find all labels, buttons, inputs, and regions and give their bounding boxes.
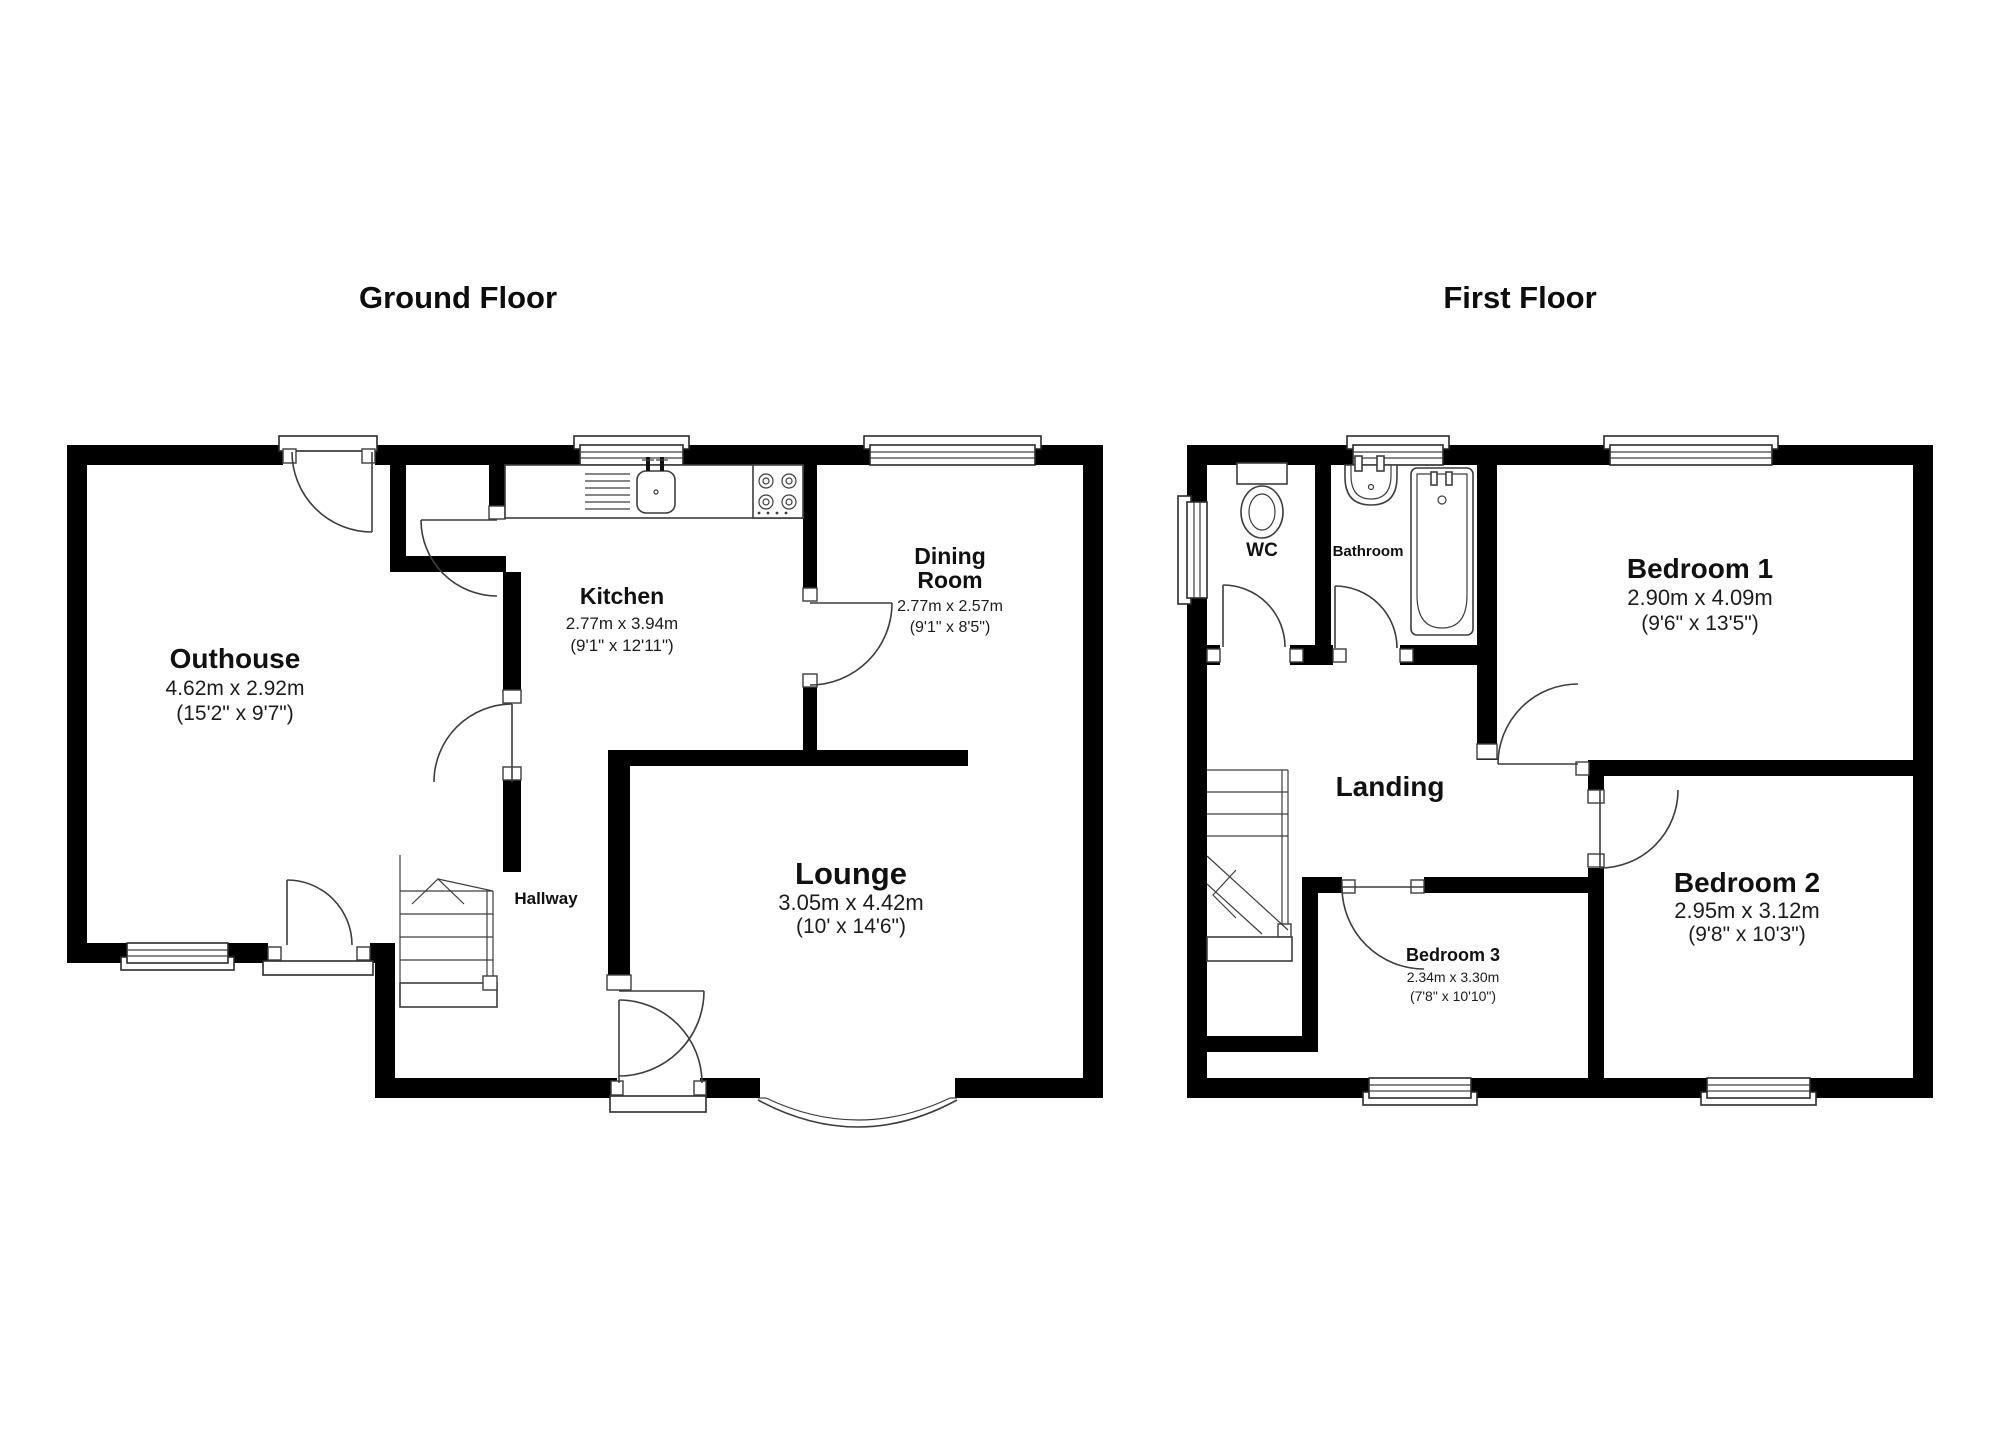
outhouse-bottom-door [287, 880, 352, 945]
svg-text:4.62m x 2.92m: 4.62m x 2.92m [166, 677, 305, 700]
svg-text:(9'8" x 10'3"): (9'8" x 10'3") [1688, 923, 1805, 946]
first-stairs-icon [1207, 770, 1292, 961]
bedroom2-door [1600, 790, 1678, 868]
kitchen-counter-icon [505, 457, 803, 518]
dining-window [864, 436, 1041, 465]
room-label-bedroom1: Bedroom 1 2.90m x 4.09m (9'6" x 13'5") [1627, 553, 1773, 635]
toilet-icon [1237, 463, 1287, 538]
room-label-wc: WC [1246, 540, 1278, 561]
first-floor-plan: First Floor WC Bathroom Bedroom 1 2.90m … [1178, 280, 1933, 1105]
first-door-swings [1223, 585, 1678, 969]
bedroom2-window [1701, 1078, 1816, 1105]
svg-text:Lounge: Lounge [795, 856, 907, 891]
first-interior-walls [1207, 465, 1913, 1078]
svg-text:Bedroom 2: Bedroom 2 [1674, 867, 1820, 898]
front-door [619, 1000, 702, 1083]
wc-window [1178, 496, 1207, 604]
svg-text:(15'2" x 9'7"): (15'2" x 9'7") [176, 702, 293, 725]
svg-text:2.77m x 2.57m: 2.77m x 2.57m [897, 598, 1003, 615]
svg-text:Kitchen: Kitchen [580, 583, 664, 609]
floorplan-canvas: Ground Floor Outhouse 4.62m x 2.92m (15'… [0, 0, 2000, 1454]
room-label-dining: Dining Room 2.77m x 2.57m (9'1" x 8'5") [897, 543, 1003, 636]
room-label-kitchen: Kitchen 2.77m x 3.94m (9'1" x 12'11") [566, 583, 678, 655]
svg-text:2.77m x 3.94m: 2.77m x 3.94m [566, 614, 678, 633]
room-label-lounge: Lounge 3.05m x 4.42m (10' x 14'6") [778, 856, 924, 938]
svg-text:2.34m x 3.30m: 2.34m x 3.30m [1407, 969, 1500, 985]
svg-text:(9'1" x 8'5"): (9'1" x 8'5") [910, 619, 991, 636]
ground-windows [121, 436, 1041, 1127]
svg-text:(7'8" x 10'10"): (7'8" x 10'10") [1410, 988, 1496, 1004]
svg-text:2.90m x 4.09m: 2.90m x 4.09m [1627, 585, 1773, 610]
ground-door-jambs [268, 449, 817, 1095]
room-label-hallway: Hallway [514, 889, 578, 908]
room-label-bedroom3: Bedroom 3 2.34m x 3.30m (7'8" x 10'10") [1406, 945, 1500, 1004]
room-label-bedroom2: Bedroom 2 2.95m x 3.12m (9'8" x 10'3") [1674, 867, 1820, 946]
bathroom-door [1335, 586, 1397, 648]
first-floor-title: First Floor [1443, 280, 1596, 315]
kitchen-window [574, 436, 689, 465]
room-label-landing: Landing [1336, 771, 1445, 802]
svg-text:(10' x 14'6"): (10' x 14'6") [796, 915, 906, 938]
bathtub-icon [1411, 468, 1473, 635]
ground-thresholds [263, 436, 706, 1112]
svg-text:Bedroom 1: Bedroom 1 [1627, 553, 1773, 584]
room-label-outhouse: Outhouse 4.62m x 2.92m (15'2" x 9'7") [166, 643, 305, 725]
room-label-bathroom: Bathroom [1333, 543, 1404, 560]
bedroom1-window [1604, 436, 1778, 465]
ground-stairs-icon [400, 855, 497, 1007]
lounge-door [619, 991, 704, 1076]
dining-door [810, 603, 892, 685]
front-door-threshold [610, 1096, 706, 1112]
wc-door [1223, 585, 1285, 647]
ground-floor-title: Ground Floor [359, 280, 557, 315]
svg-text:3.05m x 4.42m: 3.05m x 4.42m [778, 890, 924, 915]
outhouse-bottom-threshold [263, 961, 373, 975]
bedroom3-window [1363, 1078, 1477, 1105]
svg-text:Bedroom 3: Bedroom 3 [1406, 945, 1500, 965]
hob-icon [753, 465, 803, 518]
floorplan-page: Ground Floor Outhouse 4.62m x 2.92m (15'… [0, 0, 2000, 1454]
ground-floor-plan: Ground Floor Outhouse 4.62m x 2.92m (15'… [67, 280, 1103, 1127]
outhouse-top-door [292, 452, 372, 532]
outhouse-window [121, 943, 234, 970]
svg-text:Dining: Dining [914, 543, 986, 569]
svg-text:(9'1" x 12'11"): (9'1" x 12'11") [570, 636, 673, 655]
svg-text:Outhouse: Outhouse [170, 643, 301, 674]
stair-shaft-door [434, 704, 512, 782]
svg-text:2.95m x 3.12m: 2.95m x 3.12m [1674, 898, 1820, 923]
svg-text:Room: Room [917, 567, 982, 593]
svg-text:(9'6" x 13'5"): (9'6" x 13'5") [1641, 612, 1758, 635]
bedroom1-door [1498, 684, 1578, 764]
bay-window [758, 1098, 957, 1127]
